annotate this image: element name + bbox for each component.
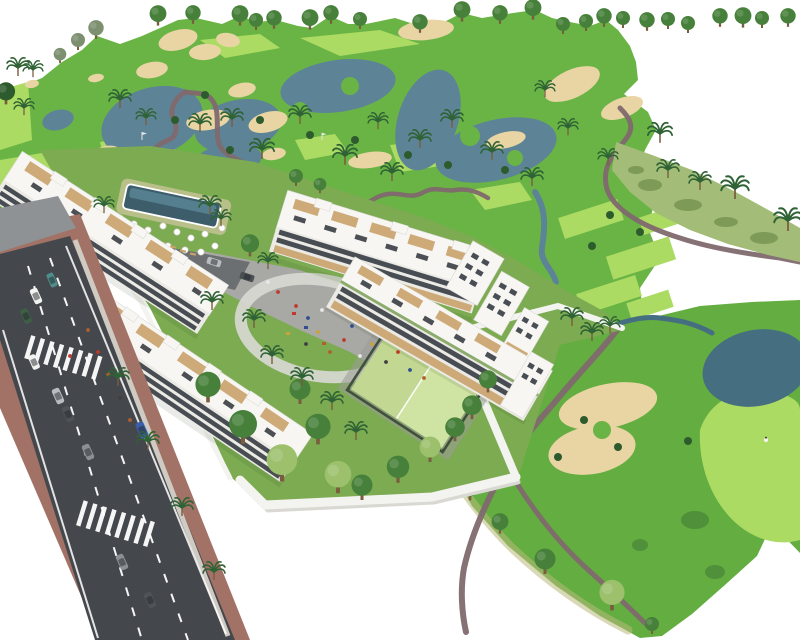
person-dot bbox=[396, 350, 400, 354]
umbrella-icon bbox=[174, 229, 180, 235]
bush-icon bbox=[226, 146, 234, 154]
bush-icon bbox=[201, 91, 209, 99]
person-dot bbox=[128, 418, 132, 422]
lake-island bbox=[460, 126, 480, 146]
umbrella-icon bbox=[219, 225, 225, 231]
bush-icon bbox=[351, 136, 359, 144]
tree-shadow bbox=[705, 565, 725, 579]
person-dot bbox=[316, 330, 320, 334]
bush-icon bbox=[614, 443, 622, 451]
person-dot bbox=[350, 324, 354, 328]
person-dot bbox=[96, 350, 100, 354]
bush-icon bbox=[444, 161, 452, 169]
person-dot bbox=[422, 376, 426, 380]
person-dot bbox=[342, 338, 346, 342]
person-dot bbox=[86, 328, 90, 332]
playground-item bbox=[304, 326, 308, 329]
umbrella-icon bbox=[188, 235, 194, 241]
bunker-island bbox=[593, 421, 611, 439]
rough-blotch bbox=[628, 166, 644, 174]
playground-item bbox=[292, 312, 296, 315]
bush-icon bbox=[580, 416, 588, 424]
person-dot bbox=[384, 360, 388, 364]
person-dot bbox=[370, 342, 374, 346]
person-dot bbox=[304, 342, 308, 346]
person-dot bbox=[266, 280, 270, 284]
bush-icon bbox=[636, 228, 644, 236]
tree-shadow bbox=[681, 511, 709, 529]
render-canvas bbox=[0, 0, 800, 640]
umbrella-icon bbox=[160, 223, 166, 229]
bush-icon bbox=[684, 437, 692, 445]
person-dot bbox=[408, 368, 412, 372]
person-dot bbox=[276, 290, 280, 294]
bush-icon bbox=[256, 116, 264, 124]
rough-blotch bbox=[674, 199, 702, 211]
person-dot bbox=[294, 304, 298, 308]
umbrella-icon bbox=[212, 243, 218, 249]
bush-icon bbox=[171, 116, 179, 124]
playground-item bbox=[322, 342, 326, 345]
bush-icon bbox=[554, 453, 562, 461]
umbrella-icon bbox=[198, 249, 204, 255]
tree-shadow bbox=[632, 539, 648, 551]
lake-island bbox=[507, 150, 523, 166]
person-dot bbox=[328, 350, 332, 354]
person-dot bbox=[306, 316, 310, 320]
bush-icon bbox=[588, 242, 596, 250]
rough-blotch bbox=[714, 217, 738, 227]
rough-blotch bbox=[750, 232, 778, 244]
person-dot bbox=[358, 354, 362, 358]
person-dot bbox=[68, 354, 72, 358]
bush-icon bbox=[606, 211, 614, 219]
aerial-render bbox=[0, 0, 800, 640]
bush-icon bbox=[306, 131, 314, 139]
lake-island bbox=[341, 77, 359, 95]
playground-item bbox=[286, 332, 290, 335]
bush-icon bbox=[404, 151, 412, 159]
rough-blotch bbox=[638, 179, 662, 191]
umbrella-icon bbox=[202, 231, 208, 237]
bush-icon bbox=[501, 166, 509, 174]
person-dot bbox=[118, 396, 122, 400]
person-dot bbox=[320, 308, 324, 312]
